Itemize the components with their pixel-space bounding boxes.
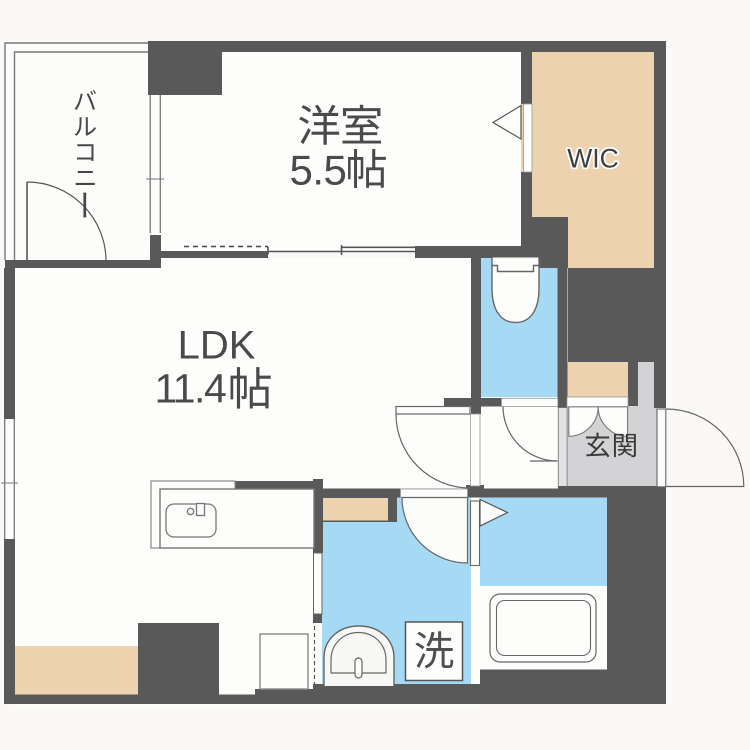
svg-text:LDK: LDK [178, 324, 256, 368]
svg-text:5.5: 5.5 [290, 146, 347, 193]
svg-text:WIC: WIC [567, 144, 619, 174]
svg-text:11.4: 11.4 [155, 365, 226, 411]
